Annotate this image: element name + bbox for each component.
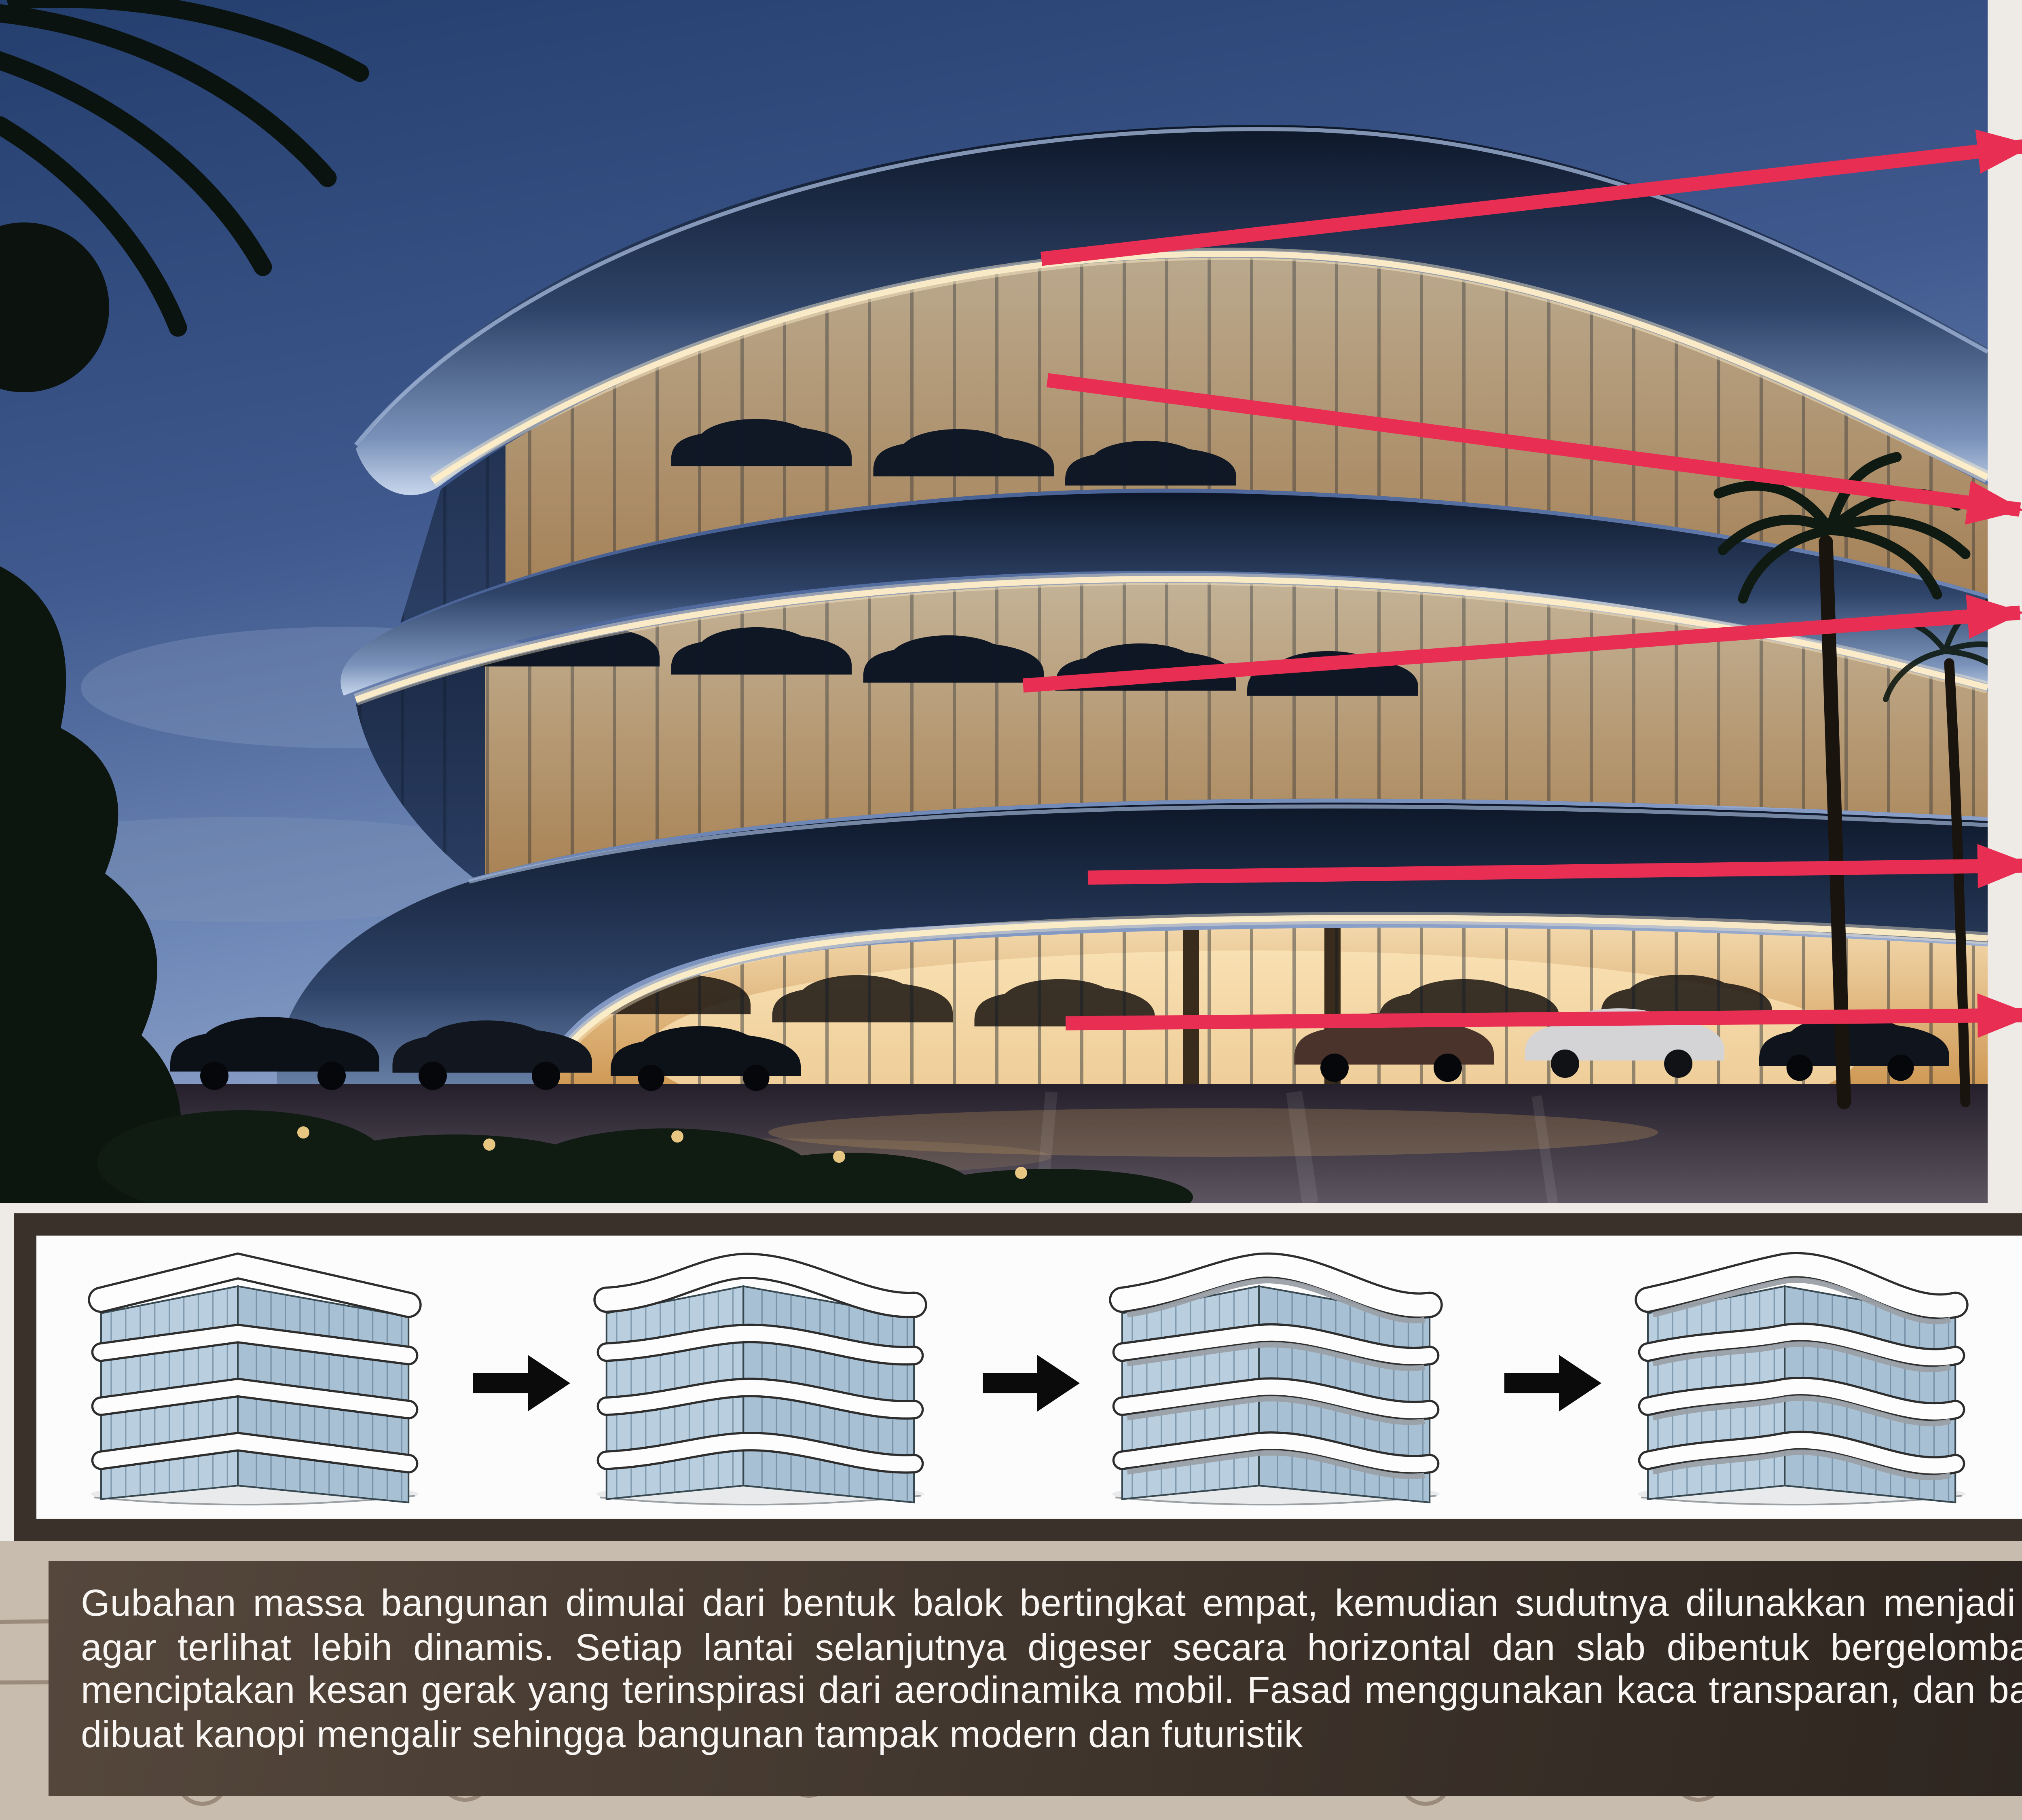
massing-strip [14, 1213, 2022, 1541]
step-arrow-icon [473, 1347, 570, 1420]
bottom-band: Gubahan massa bangunan dimulai dari bent… [0, 1541, 2022, 1820]
building-photo [0, 0, 1988, 1203]
step-arrow-icon [1504, 1347, 1601, 1420]
massing-description-box: Gubahan massa bangunan dimulai dari bent… [49, 1561, 2022, 1796]
massing-step-1 [63, 1246, 447, 1513]
step-arrow-icon [983, 1347, 1080, 1420]
massing-step-2 [568, 1246, 952, 1513]
massing-step-4 [1610, 1246, 1994, 1513]
poster: Konsep atap diambil dari prinsip aerodin… [0, 0, 2022, 1820]
massing-step-3 [1084, 1246, 1468, 1513]
massing-description-text: Gubahan massa bangunan dimulai dari bent… [81, 1581, 2022, 1754]
